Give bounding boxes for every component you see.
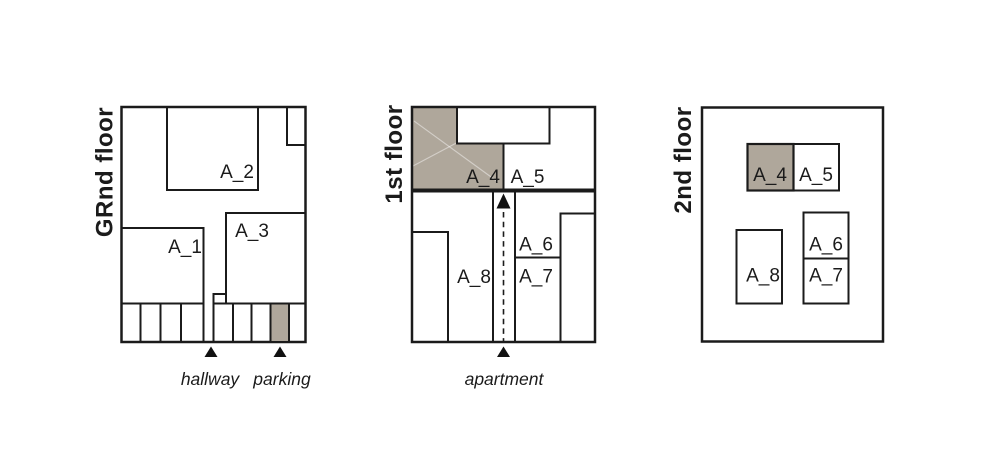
corridor-arrow-icon xyxy=(497,194,511,209)
room-a4-label-2f: A_4 xyxy=(753,165,787,186)
first-floor-title: 1st floor xyxy=(381,104,408,203)
parking-stall-shaded xyxy=(271,304,290,343)
room-a1-label: A_1 xyxy=(168,237,202,258)
room-a6-label-2f: A_6 xyxy=(809,235,843,256)
hallway-pointer-icon xyxy=(205,347,218,358)
parking-label: parking xyxy=(252,369,311,389)
room-a5-label: A_5 xyxy=(511,167,545,188)
a6-step-wall xyxy=(561,214,596,343)
ground-floor-plan: GRnd floor A_1 A_2 A_3 hallway parking xyxy=(92,107,311,389)
room-a4-label: A_4 xyxy=(466,167,500,188)
room-a8-label: A_8 xyxy=(457,267,491,288)
hallway-label: hallway xyxy=(181,369,241,389)
second-floor-title: 2nd floor xyxy=(670,106,697,213)
parking-stall-dividers-left xyxy=(141,304,182,343)
ground-top-right-shaft-outline xyxy=(287,107,306,145)
room-a5-label-2f: A_5 xyxy=(799,165,833,186)
second-floor-outline xyxy=(702,108,883,342)
room-a2-label: A_2 xyxy=(220,162,254,183)
apartment-label: apartment xyxy=(465,369,545,389)
room-a7-label-2f: A_7 xyxy=(809,266,843,287)
floor-plans-figure: GRnd floor A_1 A_2 A_3 hallway parking 1… xyxy=(0,0,985,451)
room-a6-label: A_6 xyxy=(519,235,553,256)
top-notch-outline xyxy=(457,107,550,144)
parking-pointer-icon xyxy=(274,347,287,358)
room-a3-label: A_3 xyxy=(235,221,269,242)
hallway-right-wall-step xyxy=(214,294,227,342)
floor-plans-canvas: GRnd floor A_1 A_2 A_3 hallway parking 1… xyxy=(0,0,985,451)
apartment-pointer-icon xyxy=(497,347,510,358)
second-floor-plan: 2nd floor A_4 A_5 A_6 A_7 A_8 xyxy=(670,106,883,341)
a8-inner-room-wall xyxy=(412,232,448,342)
first-floor-plan: 1st floor A_4 A_5 A_6 A_7 A_8 apartment xyxy=(381,104,595,389)
room-a8-label-2f: A_8 xyxy=(746,266,780,287)
ground-floor-title: GRnd floor xyxy=(92,107,119,237)
room-a7-label: A_7 xyxy=(519,267,553,288)
